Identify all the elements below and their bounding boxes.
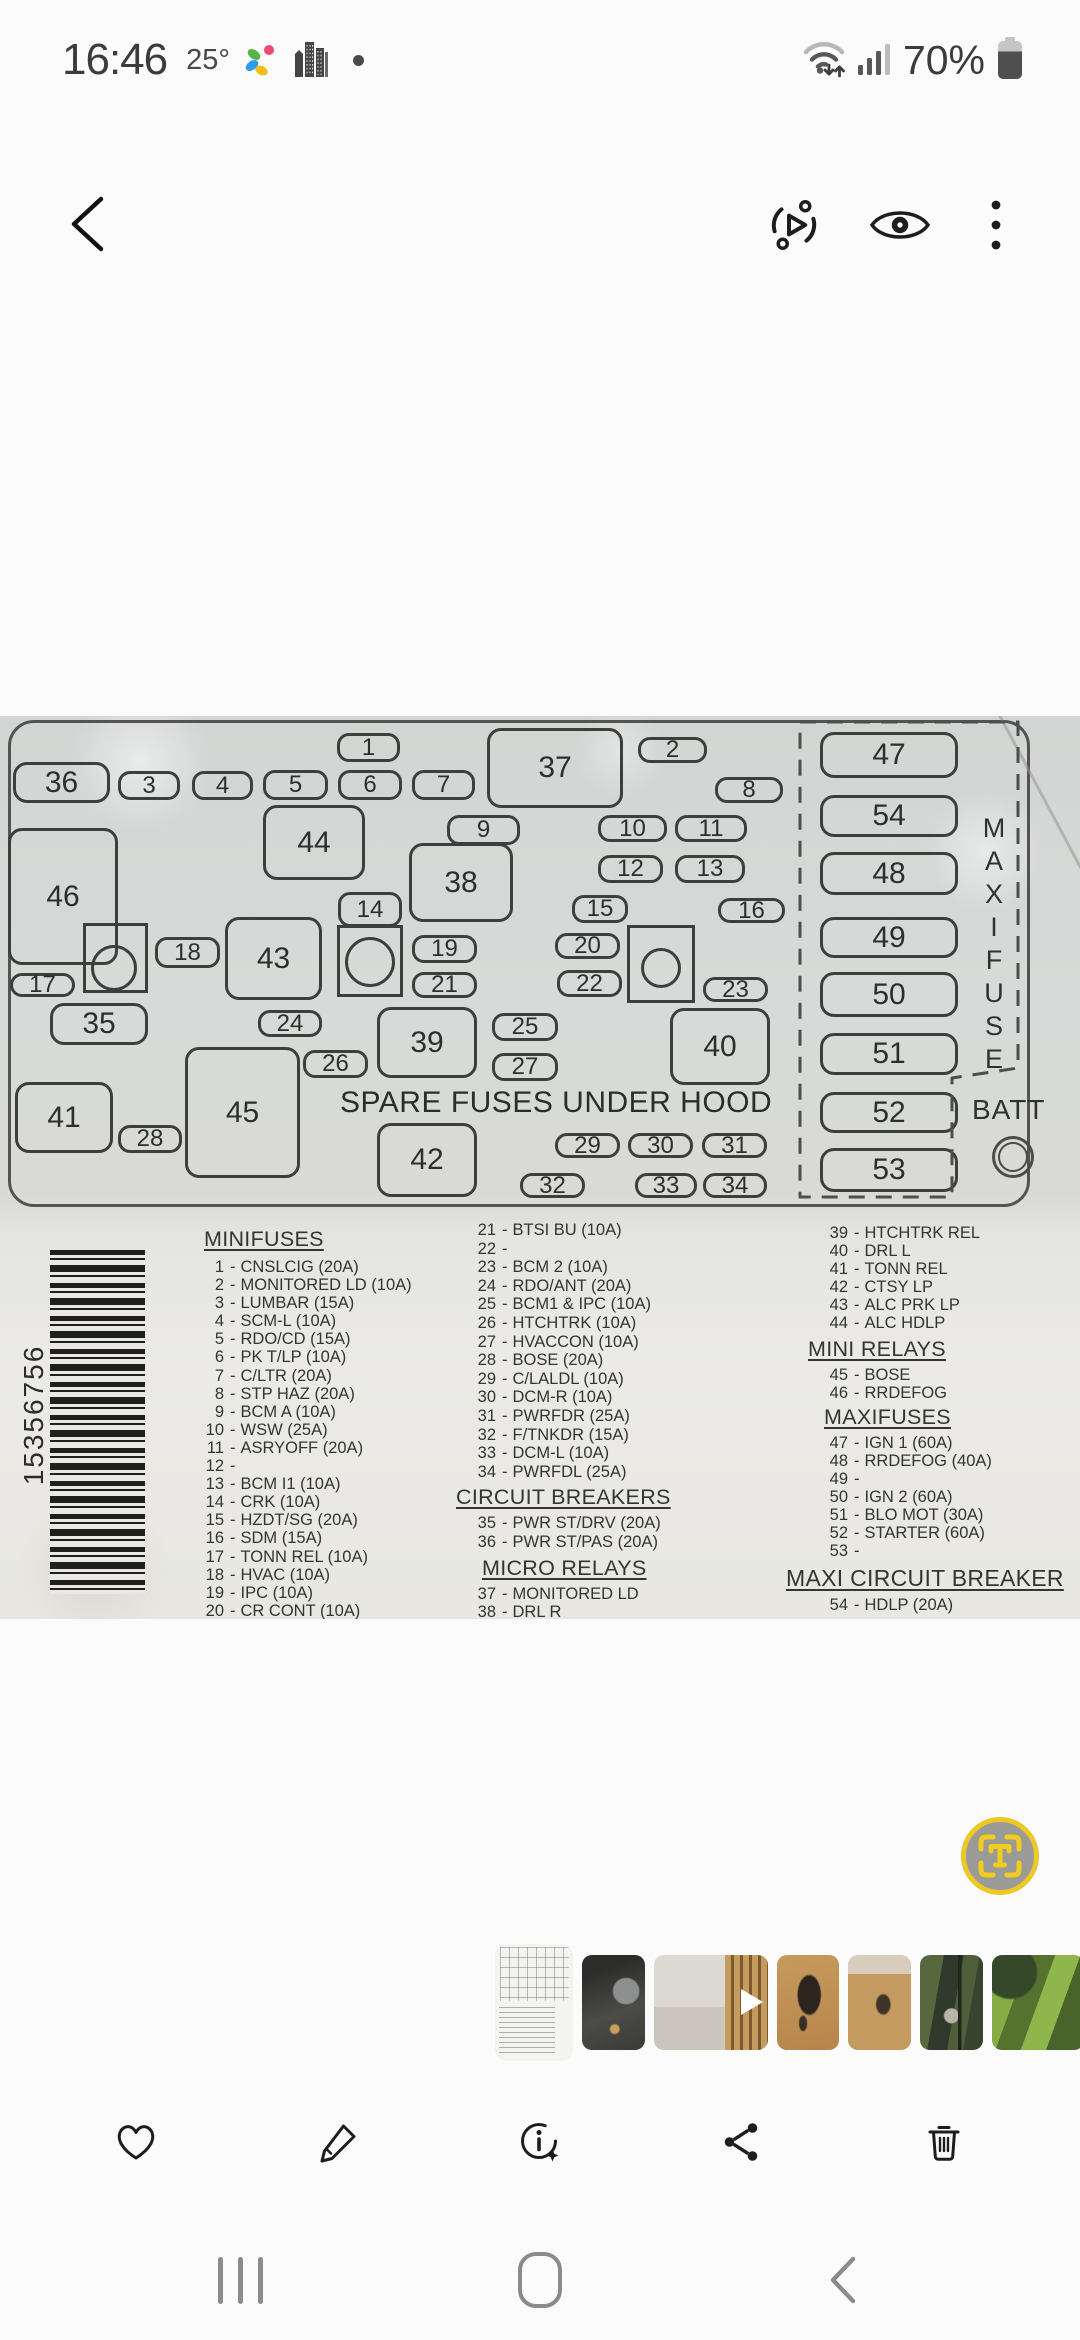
fuse-box-14: 14 [338,892,402,927]
more-options-button[interactable] [972,196,1020,256]
nav-back-icon [827,2255,859,2305]
fuse-box-28: 28 [118,1125,182,1153]
fuse-list-item-32: 32-F/TNKDR (15A) [440,1426,671,1445]
fuse-box-16: 16 [718,898,785,923]
thumbnail-garden[interactable] [920,1955,983,2050]
fuse-box-2: 2 [638,737,707,763]
fuse-list-item-33: 33-DCM-L (10A) [440,1444,671,1463]
fuse-list-item-51: 51-BLO MOT (30A) [788,1506,1064,1524]
favorite-button[interactable] [86,2110,186,2174]
fuse-list-item-34: 34-PWRFDL (25A) [440,1463,671,1482]
fuse-list-item-40: 40-DRL L [788,1242,1064,1260]
thumbnail-floor-debris-small[interactable] [848,1955,911,2050]
fuse-box-9: 9 [447,815,520,845]
fuse-list-item-16: 16-SDM (15A) [168,1529,412,1547]
fuse-list-item-42: 42-CTSY LP [788,1278,1064,1296]
fuse-list-item-47: 47-IGN 1 (60A) [788,1434,1064,1452]
fuse-box-41: 41 [15,1082,113,1153]
fuse-list-header: MINI RELAYS [808,1337,1064,1362]
fuse-box-12: 12 [598,855,663,883]
fuse-box-3: 3 [118,771,180,800]
fuse-box-29: 29 [555,1133,620,1158]
thumbnail-hallway[interactable] [654,1955,768,2050]
pencil-icon [314,2118,362,2166]
fuse-box-35: 35 [50,1003,148,1045]
fuse-list-item-52: 52-STARTER (60A) [788,1524,1064,1542]
fuse-list-header: MINIFUSES [204,1227,412,1252]
thumbnail-bushes[interactable] [992,1955,1080,2050]
recents-button[interactable] [197,2232,283,2328]
edit-button[interactable] [288,2110,388,2174]
fuse-list-item-12: 12- [168,1457,412,1475]
motion-photo-icon [764,195,824,255]
weather-app-icon [245,45,275,75]
fuse-list-item-10: 10-WSW (25A) [168,1421,412,1439]
fuse-list-item-36: 36-PWR ST/PAS (20A) [440,1533,671,1552]
fuse-box-40: 40 [670,1008,770,1085]
fuse-list-item-44: 44-ALC HDLP [788,1314,1064,1332]
fuse-list-item-27: 27-HVACCON (10A) [440,1333,671,1352]
fuse-list-item-54: 54-HDLP (20A) [788,1596,1064,1614]
fuse-list-item-23: 23-BCM 2 (10A) [440,1258,671,1277]
fuse-list-header: MAXI CIRCUIT BREAKER [786,1565,1064,1592]
bottom-toolbar [0,2106,1080,2178]
fuse-list-item-35: 35-PWR ST/DRV (20A) [440,1514,671,1533]
fuse-box-6: 6 [338,770,402,800]
fuse-list-item-26: 26-HTCHTRK (10A) [440,1314,671,1333]
eye-icon [867,202,933,248]
fuse-list-item-50: 50-IGN 2 (60A) [788,1488,1064,1506]
fuse-list-col2: 21-BTSI BU (10A)22-23-BCM 2 (10A)24-RDO/… [440,1221,671,1619]
trash-icon [920,2118,968,2166]
fuse-box-10: 10 [598,815,667,842]
fuse-box-27: 27 [492,1053,558,1081]
recents-icon [218,2257,263,2304]
relay-socket-3 [627,925,695,1003]
fuse-box-13: 13 [675,855,745,883]
fuse-list-item-29: 29-C/LALDL (10A) [440,1370,671,1389]
thumbnail-fuse-diagram[interactable] [495,1944,573,2061]
fuse-list-header: MAXIFUSES [824,1405,1064,1430]
delete-button[interactable] [894,2110,994,2174]
fuse-box-31: 31 [702,1133,767,1158]
fuse-box-25: 25 [492,1013,558,1041]
fuse-box-39: 39 [377,1007,477,1078]
notification-dot [353,55,364,66]
fuse-box-23: 23 [703,977,768,1002]
fuse-box-24: 24 [258,1010,322,1037]
fuse-list-item-15: 15-HZDT/SG (20A) [168,1511,412,1529]
fuse-box-42: 42 [377,1123,477,1197]
fuse-box-33: 33 [635,1173,697,1198]
fuse-box-15: 15 [572,895,628,923]
fuse-list-item-43: 43-ALC PRK LP [788,1296,1064,1314]
info-sparkle-icon [516,2118,564,2166]
fuse-list-item-3: 3-LUMBAR (15A) [168,1294,412,1312]
fuse-list-item-37: 37-MONITORED LD [440,1585,671,1604]
fuse-box-38: 38 [409,843,513,922]
fuse-list-header: CIRCUIT BREAKERS [456,1485,671,1510]
fuse-list-item-17: 17-TONN REL (10A) [168,1548,412,1566]
show-details-button[interactable] [866,200,934,252]
thumbnail-floor-debris[interactable] [777,1955,839,2050]
fuse-box-5: 5 [263,770,328,800]
fuse-list-item-28: 28-BOSE (20A) [440,1351,671,1370]
fuse-box-11: 11 [675,815,747,842]
fuse-box-4: 4 [192,771,253,800]
play-icon [741,1989,763,2015]
fuse-list-item-46: 46-RRDEFOG [788,1384,1064,1402]
fuse-list-item-13: 13-BCM I1 (10A) [168,1475,412,1493]
thumbnail-strip [495,1943,1080,2061]
fuse-list-item-1: 1-CNSLCIG (20A) [168,1258,412,1276]
fuse-list-item-39: 39-HTCHTRK REL [788,1224,1064,1242]
fuse-list-item-2: 2-MONITORED LD (10A) [168,1276,412,1294]
fuse-list-item-41: 41-TONN REL [788,1260,1064,1278]
fuse-list-item-7: 7-C/LTR (20A) [168,1367,412,1385]
fuse-box-21: 21 [412,972,477,998]
temperature: 25° [186,44,230,77]
battery-icon [998,41,1022,79]
fuse-box-26: 26 [303,1050,368,1078]
signal-icon [858,39,892,82]
fuse-list-header: MICRO RELAYS [482,1556,671,1581]
motion-photo-button[interactable] [762,194,826,258]
fuse-list-item-4: 4-SCM-L (10A) [168,1312,412,1330]
fuse-box-34: 34 [703,1173,767,1198]
fuse-box-44: 44 [263,805,365,880]
fuse-list-item-11: 11-ASRYOFF (20A) [168,1439,412,1457]
fuse-list-item-22: 22- [440,1240,671,1259]
barcode-number: 15356756 [18,1337,50,1493]
status-bar: 16:46 25° [0,0,1080,100]
back-icon [65,195,111,253]
share-button[interactable] [692,2110,792,2174]
fuse-list-item-53: 53- [788,1542,1064,1560]
fuse-list-item-38: 38-DRL R [440,1603,671,1619]
share-icon [718,2118,766,2166]
fuse-list-item-14: 14-CRK (10A) [168,1493,412,1511]
fuse-list-item-8: 8-STP HAZ (20A) [168,1385,412,1403]
fuse-box-19: 19 [412,935,477,963]
fuse-box-32: 32 [520,1173,585,1198]
wifi-icon [801,37,847,84]
fuse-box-17: 17 [10,973,75,997]
relay-socket-2 [337,925,403,997]
fuse-list-item-25: 25-BCM1 & IPC (10A) [440,1295,671,1314]
fuse-list-item-18: 18-HVAC (10A) [168,1566,412,1584]
fuse-list-item-30: 30-DCM-R (10A) [440,1388,671,1407]
fuse-list-col3: 39-HTCHTRK REL40-DRL L41-TONN REL42-CTSY… [788,1224,1064,1615]
batt-label: BATT [972,1094,1045,1126]
fuse-list-item-24: 24-RDO/ANT (20A) [440,1277,671,1296]
nav-back-button[interactable] [800,2232,886,2328]
back-button[interactable] [56,190,120,260]
fuse-list-item-31: 31-PWRFDR (25A) [440,1407,671,1426]
fuse-box-18: 18 [155,937,220,968]
fuse-box-30: 30 [628,1133,693,1158]
city-buildings-icon [290,39,330,82]
fuse-list-item-5: 5-RDO/CD (15A) [168,1330,412,1348]
battery-percent: 70% [903,37,985,84]
maxifuse-vertical-label: MAXIFUSE [976,812,1012,1076]
fuse-list-item-9: 9-BCM A (10A) [168,1403,412,1421]
details-button[interactable] [490,2110,590,2174]
home-icon [518,2252,562,2308]
fuse-list-item-20: 20-CR CONT (10A) [168,1602,412,1619]
fuse-box-20: 20 [555,933,620,959]
fuse-box-22: 22 [557,970,622,997]
fuse-box-7: 7 [412,770,475,800]
fuse-box-8: 8 [715,777,783,803]
home-button[interactable] [497,2232,583,2328]
fuse-list-item-6: 6-PK T/LP (10A) [168,1348,412,1366]
spare-fuses-label: SPARE FUSES UNDER HOOD [340,1086,740,1120]
clock: 16:46 [62,35,167,85]
extract-text-button[interactable] [961,1817,1039,1895]
thumbnail-couch[interactable] [582,1955,645,2050]
navigation-bar [0,2232,1080,2328]
scan-text-icon [977,1833,1023,1879]
fuse-box-43: 43 [225,917,322,1000]
more-options-icon [988,198,1004,252]
fuse-list-item-49: 49- [788,1470,1064,1488]
photo-view[interactable]: 1236345673784491011463812131415164318192… [0,716,1080,1619]
relay-socket-1 [83,923,148,993]
fuse-box-45: 45 [185,1047,300,1178]
fuse-list-item-21: 21-BTSI BU (10A) [440,1221,671,1240]
fuse-box-1: 1 [337,733,400,762]
heart-icon [112,2118,160,2166]
fuse-list-item-19: 19-IPC (10A) [168,1584,412,1602]
batt-terminal-circle [992,1136,1034,1178]
barcode [50,1250,145,1594]
fuse-box-37: 37 [487,728,623,808]
fuse-list-item-48: 48-RRDEFOG (40A) [788,1452,1064,1470]
fuse-box-36: 36 [13,762,110,803]
fuse-list-item-45: 45-BOSE [788,1366,1064,1384]
fuse-list-col1: MINIFUSES1-CNSLCIG (20A)2-MONITORED LD (… [168,1227,412,1619]
